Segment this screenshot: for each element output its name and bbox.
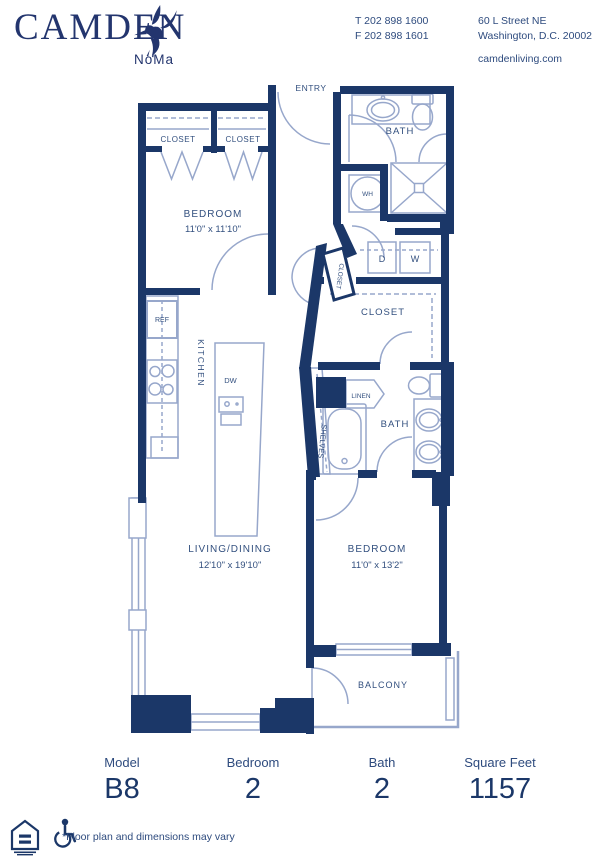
washer-label: W — [411, 254, 420, 264]
dryer-label: D — [379, 254, 386, 264]
closet-door-swing — [380, 332, 412, 364]
linen-label: LINEN — [351, 393, 370, 400]
bedroom1-label: BEDROOM — [184, 209, 243, 220]
sqft-label: Square Feet — [435, 755, 565, 770]
closet-b-label: CLOSET — [225, 135, 260, 144]
shower-door-swing — [419, 134, 447, 162]
floorplan-sheet: CAMDEN NoMa T 202 898 1600 F 202 898 160… — [0, 0, 600, 864]
model-value: B8 — [57, 773, 187, 806]
window-mullion — [129, 610, 146, 630]
equal-housing-icon — [8, 818, 42, 856]
walkin-closet-label: CLOSET — [361, 307, 405, 318]
island-sink — [219, 397, 243, 412]
window-mullion — [129, 498, 146, 538]
wh-label: WH — [362, 191, 373, 198]
disclaimer-text: *Floor plan and dimensions may vary — [62, 831, 235, 843]
dw-label: DW — [224, 376, 237, 385]
living-dims: 12'10" x 19'10" — [199, 560, 262, 571]
bedroom2-label: BEDROOM — [348, 544, 407, 555]
ref-label: REF — [155, 317, 169, 324]
bedroom2-dims: 11'0" x 13'2" — [351, 560, 402, 571]
summary-bedroom: Bedroom 2 — [188, 755, 318, 806]
bifold-door — [225, 152, 262, 179]
entry-door-swing — [278, 92, 330, 144]
bedroom2-door-swing — [316, 478, 358, 520]
bath1-label: BATH — [386, 126, 415, 137]
balcony-label: BALCONY — [358, 680, 408, 690]
bath2-label: BATH — [381, 419, 410, 430]
bifold-door — [161, 152, 203, 179]
bath-count-value: 2 — [317, 773, 447, 806]
bath2-toilet — [430, 374, 442, 397]
closet-a-label: CLOSET — [160, 135, 195, 144]
bath-count-label: Bath — [317, 755, 447, 770]
model-label: Model — [57, 755, 187, 770]
bath1-door-swing — [349, 115, 396, 162]
bedroom1-door-swing — [212, 234, 268, 290]
living-label: LIVING/DINING — [188, 544, 272, 555]
sqft-value: 1157 — [435, 773, 565, 806]
bath2-door-swing — [377, 437, 412, 472]
bedroom-count-value: 2 — [188, 773, 318, 806]
summary-model: Model B8 — [57, 755, 187, 806]
fixtures-layer — [129, 92, 458, 730]
kitchen-label: KITCHEN — [196, 339, 206, 387]
kitchen-island — [215, 343, 264, 536]
walls-layer — [131, 85, 454, 734]
bedroom1-dims: 11'0" x 11'10" — [185, 224, 241, 235]
summary-bath: Bath 2 — [317, 755, 447, 806]
entry-label: ENTRY — [295, 83, 326, 93]
bedroom-count-label: Bedroom — [188, 755, 318, 770]
floorplan-drawing: ENTRY BATH WH D W CLOSET CLOSET CLOSET C… — [0, 0, 600, 864]
summary-sqft: Square Feet 1157 — [435, 755, 565, 806]
balcony-door-swing — [312, 668, 348, 704]
shelves-label: SHELVES — [316, 424, 329, 459]
